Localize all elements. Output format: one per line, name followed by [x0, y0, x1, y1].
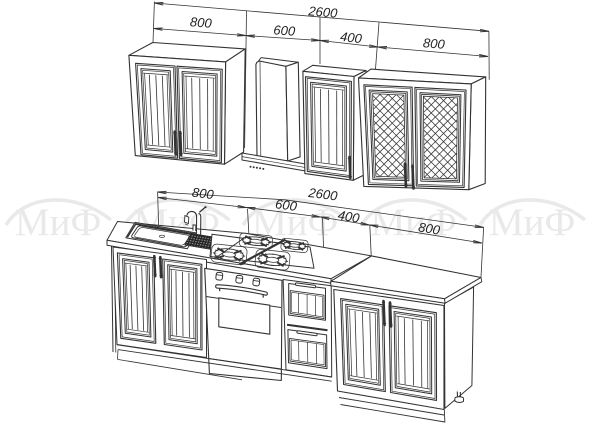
svg-text:800: 800: [191, 185, 215, 203]
svg-text:400: 400: [339, 29, 363, 46]
svg-text:800: 800: [189, 14, 213, 31]
svg-text:600: 600: [274, 196, 298, 214]
svg-text:600: 600: [273, 22, 296, 39]
svg-text:800: 800: [422, 35, 446, 52]
svg-text:2600: 2600: [307, 3, 339, 21]
